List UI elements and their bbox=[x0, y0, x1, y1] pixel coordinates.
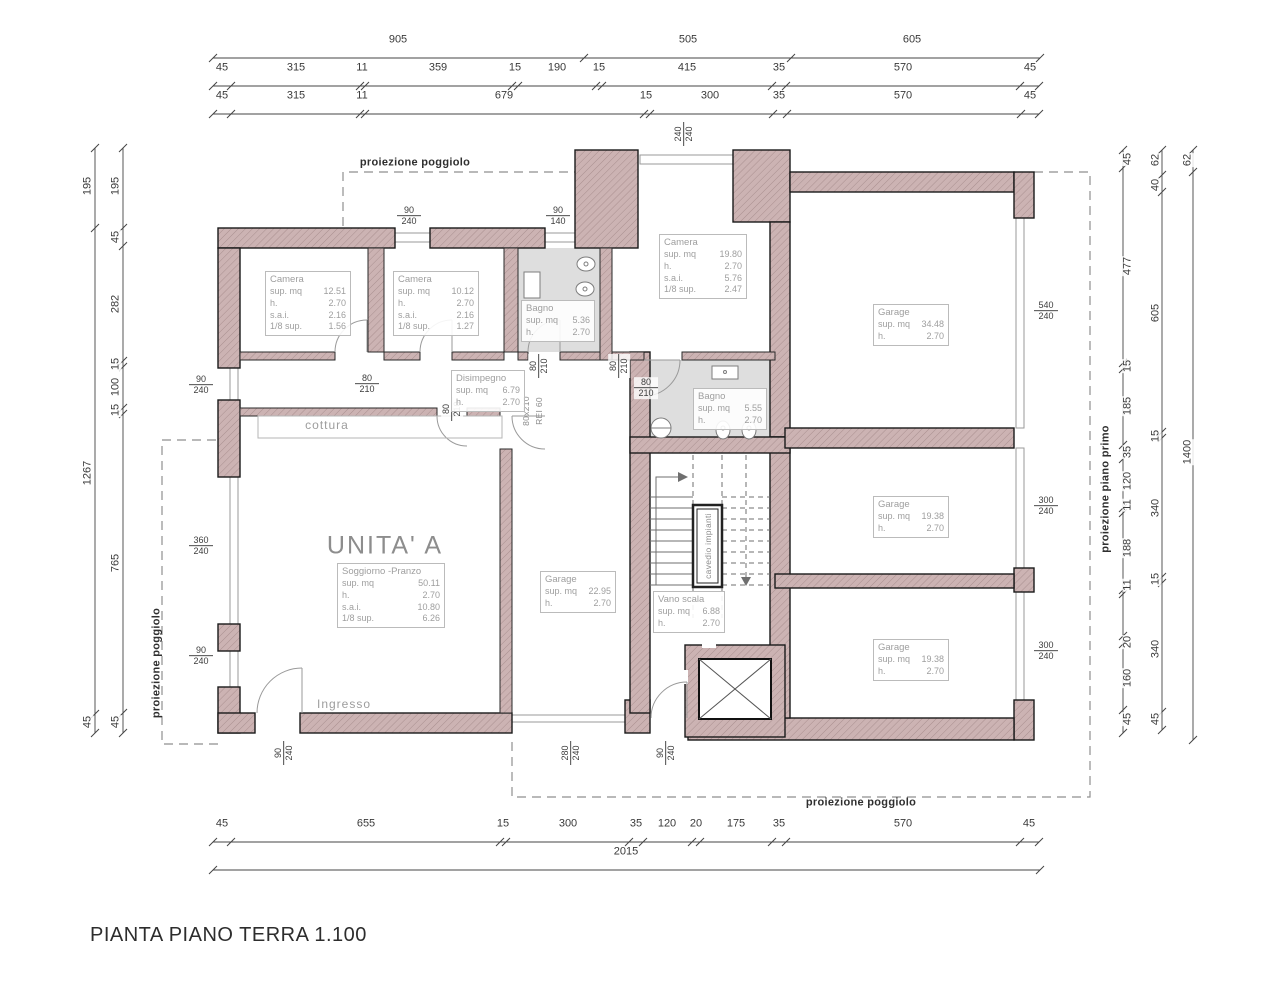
interior-partitions bbox=[240, 248, 775, 713]
door-swings bbox=[257, 320, 687, 718]
floor-plan-drawing bbox=[0, 0, 1280, 992]
duct-box bbox=[693, 505, 722, 587]
floor-plan-page: 9055056054531511359151901541535570454531… bbox=[0, 0, 1280, 992]
kitchen-counter bbox=[258, 416, 502, 438]
page-title: PIANTA PIANO TERRA 1.100 bbox=[90, 924, 367, 947]
exterior-walls bbox=[218, 150, 1034, 740]
